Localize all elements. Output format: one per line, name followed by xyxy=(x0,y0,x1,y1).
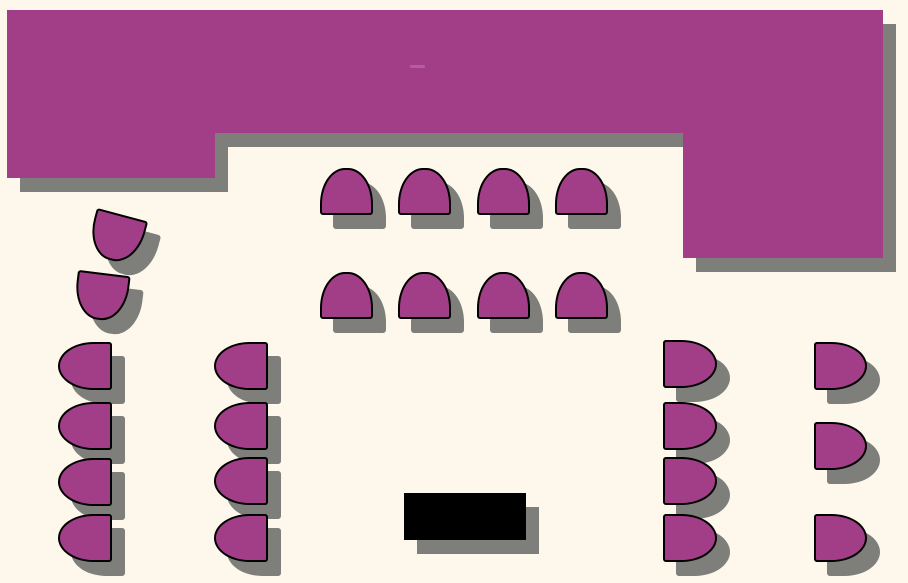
floor-plan-canvas[interactable] xyxy=(0,0,908,583)
head-table-block-left[interactable] xyxy=(7,10,215,178)
chair-center-r1-c4[interactable] xyxy=(555,168,608,215)
chair-center-r2-c3[interactable] xyxy=(477,272,530,319)
chair-left-col2-2[interactable] xyxy=(214,402,268,450)
chair-left-col2-1[interactable] xyxy=(214,342,268,390)
chair-left-col1-2[interactable] xyxy=(58,402,112,450)
chair-center-r1-c3[interactable] xyxy=(477,168,530,215)
chair-left-col1-3[interactable] xyxy=(58,458,112,506)
chair-center-r1-c2[interactable] xyxy=(398,168,451,215)
chair-left-col1-4[interactable] xyxy=(58,514,112,562)
chair-center-r2-c2[interactable] xyxy=(398,272,451,319)
paint-artifact xyxy=(410,65,425,68)
head-table-block-right[interactable] xyxy=(683,10,883,258)
chair-center-r1-c1[interactable] xyxy=(320,168,373,215)
chair-left-col1-1[interactable] xyxy=(58,342,112,390)
chair-center-r2-c1[interactable] xyxy=(320,272,373,319)
chair-left-col2-3[interactable] xyxy=(214,457,268,505)
head-table-block-middle[interactable] xyxy=(215,10,683,133)
chair-left-col2-4[interactable] xyxy=(214,514,268,562)
chair-center-r2-c4[interactable] xyxy=(555,272,608,319)
podium-table[interactable] xyxy=(404,493,526,540)
